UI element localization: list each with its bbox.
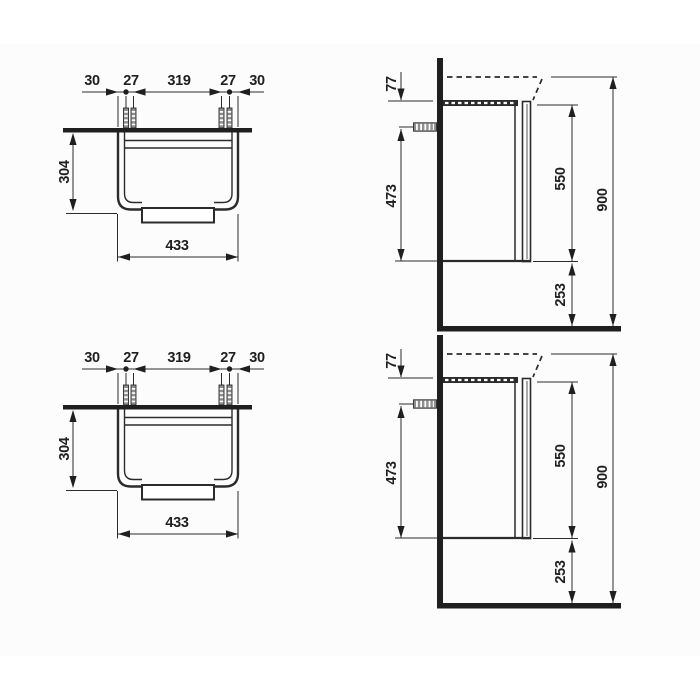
- vanity-unit-dimension-drawing: 30 27 319 27 30 304 433: [0, 0, 700, 700]
- technical-drawing-page: 30 27 319 27 30 304 433: [0, 0, 700, 700]
- drawing-canvas-background: [0, 44, 700, 656]
